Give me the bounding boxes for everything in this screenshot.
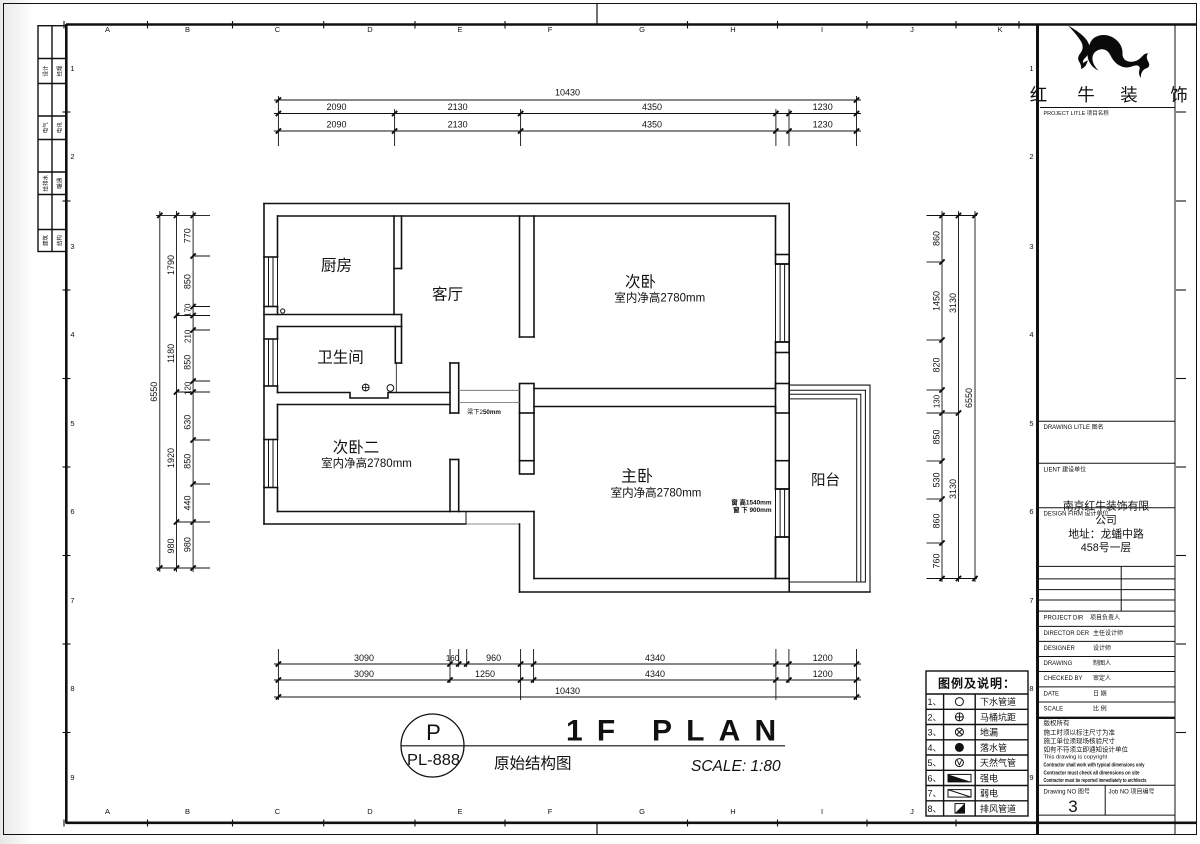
svg-text:H: H	[730, 807, 735, 816]
svg-text:审定人: 审定人	[1093, 674, 1111, 682]
svg-text:3、: 3、	[927, 728, 941, 738]
svg-text:饰: 饰	[1170, 85, 1188, 105]
svg-text:458号一层: 458号一层	[1081, 541, 1132, 554]
svg-text:4350: 4350	[642, 102, 662, 112]
svg-text:130: 130	[933, 394, 942, 408]
svg-text:南京红牛装饰有限: 南京红牛装饰有限	[1063, 499, 1150, 513]
svg-text:Contractor shall work with typ: Contractor shall work with typical dimen…	[1044, 763, 1146, 769]
svg-text:960: 960	[486, 653, 501, 663]
svg-text:DIRECTOR DER: DIRECTOR DER	[1044, 631, 1090, 637]
svg-text:1、: 1、	[927, 697, 941, 707]
svg-text:1920: 1920	[166, 448, 176, 468]
svg-text:7: 7	[1029, 596, 1033, 605]
svg-text:3130: 3130	[948, 479, 958, 499]
svg-text:4、: 4、	[927, 743, 941, 753]
svg-text:次卧二: 次卧二	[333, 439, 380, 457]
svg-text:10430: 10430	[555, 686, 580, 696]
svg-text:8、: 8、	[927, 804, 941, 814]
svg-text:B: B	[185, 25, 190, 34]
svg-text:6: 6	[70, 507, 74, 516]
svg-text:地漏: 地漏	[980, 727, 998, 738]
svg-text:窗 下 900mm: 窗 下 900mm	[733, 505, 772, 514]
svg-text:施工时须以标注尺寸为准: 施工时须以标注尺寸为准	[1044, 728, 1116, 737]
svg-text:4340: 4340	[645, 669, 665, 679]
svg-text:2: 2	[70, 152, 74, 161]
svg-text:制图人: 制图人	[1093, 659, 1111, 667]
svg-text:室内净高2780mm: 室内净高2780mm	[611, 486, 702, 500]
svg-text:860: 860	[932, 231, 942, 246]
svg-text:6: 6	[1029, 507, 1033, 516]
svg-text:B: B	[185, 807, 190, 816]
svg-text:梁下250mm: 梁下250mm	[467, 408, 501, 416]
svg-text:电讯: 电讯	[56, 122, 64, 134]
svg-text:530: 530	[932, 472, 942, 487]
svg-text:G: G	[639, 807, 645, 816]
svg-text:E: E	[457, 25, 462, 34]
svg-text:H: H	[730, 25, 735, 34]
svg-text:3090: 3090	[354, 669, 374, 679]
svg-text:850: 850	[183, 274, 193, 289]
svg-text:1790: 1790	[166, 255, 176, 275]
svg-text:1230: 1230	[813, 102, 833, 112]
svg-text:马桶坑距: 马桶坑距	[980, 711, 1016, 722]
svg-text:630: 630	[183, 415, 193, 430]
svg-text:1F PLAN: 1F PLAN	[566, 715, 790, 748]
svg-text:1250: 1250	[475, 669, 495, 679]
svg-text:J: J	[910, 807, 914, 816]
svg-text:5: 5	[70, 419, 74, 428]
svg-text:Contractor must check all dime: Contractor must check all dimensions on …	[1044, 770, 1141, 776]
svg-text:暖通: 暖通	[56, 177, 64, 189]
svg-text:结构: 结构	[56, 235, 64, 247]
svg-text:公司: 公司	[1095, 515, 1117, 527]
svg-text:电气: 电气	[42, 122, 50, 134]
svg-text:3: 3	[1029, 242, 1033, 251]
svg-text:2: 2	[1029, 152, 1033, 161]
svg-text:D: D	[367, 807, 373, 816]
svg-text:D: D	[367, 25, 373, 34]
svg-text:P: P	[426, 720, 441, 745]
svg-text:1200: 1200	[813, 669, 833, 679]
svg-text:阳台: 阳台	[811, 472, 840, 489]
svg-text:3: 3	[1068, 797, 1077, 816]
svg-text:如有不符须立即通知设计单位: 如有不符须立即通知设计单位	[1044, 745, 1129, 754]
svg-text:C: C	[275, 807, 281, 816]
svg-text:SCALE: SCALE	[1044, 706, 1064, 712]
svg-text:2130: 2130	[448, 102, 468, 112]
svg-text:客厅: 客厅	[432, 286, 463, 304]
svg-text:DESIGNER: DESIGNER	[1044, 646, 1076, 652]
svg-text:A: A	[105, 25, 110, 34]
svg-text:DATE: DATE	[1044, 691, 1060, 697]
svg-text:170: 170	[184, 303, 193, 317]
svg-text:SCALE: 1:80: SCALE: 1:80	[691, 758, 781, 775]
svg-text:次卧: 次卧	[625, 273, 656, 291]
svg-text:DRAWING: DRAWING	[1044, 661, 1073, 667]
svg-text:980: 980	[166, 538, 176, 553]
svg-text:10430: 10430	[555, 88, 580, 98]
svg-text:设计师: 设计师	[1093, 644, 1111, 652]
svg-text:卫生间: 卫生间	[317, 349, 364, 367]
svg-text:落水管: 落水管	[980, 742, 1007, 753]
svg-text:经理: 经理	[56, 65, 64, 77]
svg-text:C: C	[275, 25, 281, 34]
svg-text:F: F	[548, 807, 553, 816]
svg-text:室内净高2780mm: 室内净高2780mm	[321, 456, 412, 470]
svg-text:I: I	[821, 807, 823, 816]
svg-text:3090: 3090	[354, 653, 374, 663]
svg-text:施工单位须现场核验尺寸: 施工单位须现场核验尺寸	[1044, 736, 1116, 745]
svg-text:弱电: 弱电	[980, 788, 998, 799]
svg-text:9: 9	[1029, 773, 1033, 782]
svg-text:F: F	[548, 25, 553, 34]
svg-text:3: 3	[70, 242, 74, 251]
svg-text:6、: 6、	[927, 773, 941, 783]
svg-text:2090: 2090	[326, 102, 346, 112]
svg-text:3130: 3130	[948, 293, 958, 313]
svg-text:160: 160	[446, 654, 460, 663]
svg-text:PROJECT LITLE 项目名称: PROJECT LITLE 项目名称	[1044, 109, 1110, 117]
svg-text:Job NO 项目编号: Job NO 项目编号	[1109, 788, 1155, 796]
svg-text:比 例: 比 例	[1093, 704, 1107, 712]
svg-text:主卧: 主卧	[621, 468, 653, 486]
svg-text:2090: 2090	[326, 120, 346, 130]
svg-text:6550: 6550	[149, 382, 159, 402]
svg-text:G: G	[639, 25, 645, 34]
svg-text:5: 5	[1029, 419, 1033, 428]
svg-text:760: 760	[932, 553, 942, 568]
svg-text:This drawing is copyright: This drawing is copyright	[1044, 755, 1108, 761]
svg-text:1180: 1180	[166, 344, 176, 363]
svg-text:8: 8	[70, 684, 74, 693]
svg-text:地址：龙蟠中路: 地址：龙蟠中路	[1068, 527, 1144, 541]
svg-text:440: 440	[183, 495, 193, 510]
svg-text:Drawing NO 图号: Drawing NO 图号	[1044, 789, 1090, 796]
svg-text:4: 4	[1029, 330, 1033, 339]
svg-text:版权所有: 版权所有	[1044, 718, 1071, 727]
svg-text:4350: 4350	[642, 120, 662, 130]
svg-text:820: 820	[932, 357, 942, 372]
svg-text:J: J	[910, 25, 914, 34]
svg-text:图例及说明：: 图例及说明：	[938, 676, 1016, 691]
svg-text:860: 860	[932, 513, 942, 528]
svg-text:770: 770	[183, 228, 193, 243]
svg-text:下水管道: 下水管道	[980, 696, 1016, 707]
svg-text:210: 210	[184, 329, 193, 343]
svg-text:980: 980	[183, 537, 193, 552]
svg-text:PROJECT DIR: PROJECT DIR	[1044, 616, 1085, 622]
svg-text:强电: 强电	[980, 772, 998, 783]
svg-text:6550: 6550	[964, 388, 974, 408]
svg-text:LIENT 建设单位: LIENT 建设单位	[1044, 466, 1087, 474]
svg-text:建筑: 建筑	[42, 235, 50, 247]
svg-text:主任设计师: 主任设计师	[1093, 629, 1123, 637]
svg-text:红: 红	[1030, 85, 1048, 105]
svg-text:8: 8	[1029, 684, 1033, 693]
svg-text:E: E	[457, 807, 462, 816]
svg-text:7: 7	[70, 596, 74, 605]
svg-text:PL-888: PL-888	[407, 752, 460, 769]
svg-text:7、: 7、	[927, 789, 941, 799]
svg-text:1230: 1230	[813, 120, 833, 130]
svg-text:1: 1	[1029, 64, 1033, 73]
svg-text:厨房: 厨房	[321, 257, 352, 275]
svg-text:4: 4	[70, 330, 74, 339]
svg-text:牛: 牛	[1077, 85, 1095, 105]
svg-text:室内净高2780mm: 室内净高2780mm	[614, 291, 705, 305]
svg-text:CHECKED BY: CHECKED BY	[1044, 676, 1083, 682]
svg-text:窗 高1540mm: 窗 高1540mm	[731, 498, 771, 507]
svg-text:天然气管: 天然气管	[980, 757, 1016, 768]
svg-text:850: 850	[932, 429, 942, 444]
svg-text:装: 装	[1120, 85, 1138, 105]
svg-text:排风管道: 排风管道	[980, 803, 1016, 814]
svg-text:1200: 1200	[813, 653, 833, 663]
svg-text:9: 9	[70, 773, 74, 782]
svg-text:DRAWING LITLE 图名: DRAWING LITLE 图名	[1044, 423, 1104, 431]
svg-text:给排水: 给排水	[42, 174, 50, 191]
svg-text:120: 120	[184, 381, 193, 395]
svg-text:原始结构图: 原始结构图	[494, 755, 572, 773]
svg-text:2130: 2130	[448, 120, 468, 130]
svg-text:I: I	[821, 25, 823, 34]
svg-text:Contractor must be reported im: Contractor must be reported immediately …	[1044, 778, 1147, 784]
svg-text:2、: 2、	[927, 712, 941, 722]
svg-text:日 期: 日 期	[1093, 689, 1107, 697]
svg-text:设计: 设计	[42, 65, 50, 77]
svg-text:项目负责人: 项目负责人	[1090, 614, 1120, 622]
svg-text:A: A	[105, 807, 110, 816]
svg-text:K: K	[997, 25, 1002, 34]
svg-text:850: 850	[183, 355, 193, 370]
svg-text:4340: 4340	[645, 653, 665, 663]
svg-text:1: 1	[70, 64, 74, 73]
svg-text:1450: 1450	[932, 291, 942, 311]
svg-text:5、: 5、	[927, 758, 941, 768]
svg-text:850: 850	[183, 454, 193, 469]
